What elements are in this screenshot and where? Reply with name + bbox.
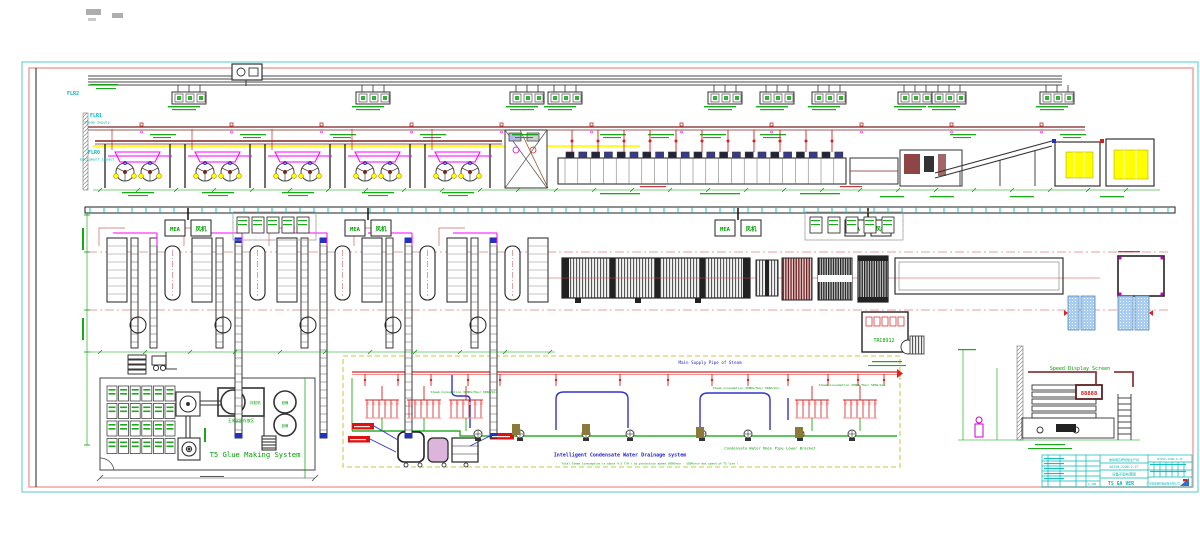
plan-module (354, 228, 435, 438)
generated-label: MEA (720, 227, 731, 233)
unwind-stand (345, 129, 412, 188)
forklift (128, 352, 177, 374)
steam-consumption-label: Steam Consumption 300KG/Hour 500m/min (713, 386, 780, 390)
hanger-cluster (548, 85, 582, 104)
roller-cylinder (562, 258, 750, 303)
generated-label: 风机 (745, 225, 757, 233)
hanger-cluster (708, 85, 742, 104)
title-scale: 1:100 (1088, 482, 1097, 486)
generated-label: MEA (350, 227, 361, 233)
drainage-note: Total Steam Consumption is about 4.5 T/H… (562, 462, 739, 466)
speed-screen-elevation (958, 346, 1140, 440)
condensate-pump (744, 430, 752, 441)
drainage-skid (348, 423, 514, 467)
floor-label-flr2: FLR2 (67, 91, 79, 97)
plan-module (269, 228, 350, 438)
drum-label: 胶桶 (282, 400, 288, 405)
drum-label: 胶桶 (282, 423, 288, 428)
floor-label-flr1: FLR1 (90, 113, 102, 119)
condensate-pump (848, 430, 856, 441)
generated-label: 风机 (195, 225, 207, 233)
hanger-cluster (760, 85, 794, 104)
steam-consumption-label: Steam Consumption 300KG/Hour 500m/min (431, 390, 498, 394)
condensate-bracket-label: Condensate Water Main Pipe Lower Bracket (724, 446, 815, 451)
radiator-comb (843, 386, 877, 431)
cad-canvas: MEA风机MEA风机MEA风机MEA风机 FLR2 FLR1 Steam Sup… (0, 0, 1200, 557)
control-cabinet-trc (862, 312, 924, 354)
floor-label-flr0: FLR0 (88, 150, 100, 156)
hoist-motor (232, 64, 262, 86)
drainage-title: Intelligent Condensate Water Drainage sy… (554, 453, 686, 459)
exit-conveyor (895, 256, 1164, 296)
coater-tower (505, 130, 548, 188)
generated-label: 风机 (375, 225, 387, 233)
floor-label-flr0-sub: Equipment Layout (80, 158, 115, 162)
unwind-stand (265, 129, 332, 188)
trc-code-label: TRC8912 (873, 338, 894, 344)
title-code-top: WJ250-2200-2-1F (1157, 457, 1183, 461)
generated-label: MEA (170, 227, 181, 233)
starch-area-label: 玉米淀粉存放区 (228, 418, 255, 423)
hanger-cluster (932, 85, 966, 104)
speed-screen-label: Speed Display Screen (1050, 366, 1110, 372)
stacker-units (1052, 139, 1154, 186)
title-company: 广东玻璃钢机械设备有限公司 (1146, 482, 1180, 486)
dryer-band (558, 158, 846, 184)
pallet-stacks (1064, 296, 1153, 330)
hanger-cluster (1040, 85, 1074, 104)
cad-drawing: MEA风机MEA风机MEA风机MEA风机 FLR2 FLR1 Steam Sup… (0, 0, 1200, 557)
hanger-cluster (898, 85, 932, 104)
glue-system-label: T5 Glue Making System (210, 450, 301, 459)
condensate-pump (474, 430, 482, 441)
speed-display-value: 88888 (1081, 391, 1098, 397)
steam-consumption-label: Steam Consumption 300KG/Hour 500m/min (819, 383, 886, 387)
middle-plan-view (85, 207, 1175, 445)
floor-label-flr1-sub: Steam Supply (84, 121, 111, 125)
title-line1: 玻璃钢瓦楞纸板生产线 (1109, 457, 1139, 462)
hanger-cluster (172, 85, 206, 104)
title-version: TS GA VER (1108, 481, 1134, 487)
tank-label: 拌胶机 (250, 400, 261, 405)
hanger-cluster (356, 85, 390, 104)
hanger-cluster (510, 85, 544, 104)
title-code: WJ250-2200-2-1F (1110, 465, 1139, 469)
hanger-cluster (812, 85, 846, 104)
condensate-pump (626, 430, 634, 441)
unwind-stand (185, 129, 252, 188)
steam-main-label: Main Supply Pipe of Steam (678, 360, 742, 365)
top-elevation-view (83, 64, 1154, 190)
radiator-comb (795, 386, 829, 431)
title-sheet-name: 设备平面布置图 (1112, 472, 1136, 477)
plan-module (99, 228, 180, 348)
